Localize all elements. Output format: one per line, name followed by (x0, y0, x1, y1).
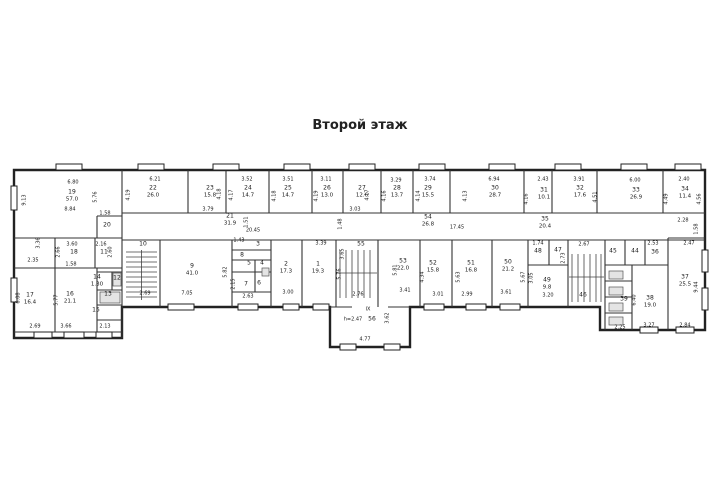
dim-label: 2.47 (683, 242, 694, 247)
room-label-3: 3 (256, 242, 260, 249)
dim-label: 3.41 (399, 289, 410, 294)
dim-label: 5.76 (94, 191, 99, 202)
room-label-37: 3725.5 (679, 275, 691, 288)
dim-label: 5.81 (394, 264, 399, 275)
dim-label: 8.84 (64, 208, 75, 213)
room-label-1: 119.3 (312, 262, 324, 275)
dim-label: IX (366, 308, 371, 313)
room-label-50: 5021.2 (502, 260, 514, 273)
room-label-7: 7 (244, 282, 248, 289)
dim-label: 2.40 (678, 178, 689, 183)
room-label-5: 5 (247, 261, 251, 268)
dim-label: 4.16 (383, 190, 388, 201)
dim-label: 3.74 (424, 178, 435, 183)
dim-label: 2.67 (578, 243, 589, 248)
dim-label: 5.76 (338, 268, 343, 279)
room-label-14: 141.30 (91, 275, 103, 288)
dim-label: 6.94 (488, 178, 499, 183)
dim-label: 1.43 (233, 239, 244, 244)
dim-label: 2.15 (232, 278, 237, 289)
dim-label: 3.05 (530, 272, 535, 283)
room-label-48: 48 (534, 249, 542, 256)
room-label-31: 3110.1 (538, 188, 550, 201)
dim-label: 2.66 (57, 246, 62, 257)
dim-label: 4.16 (525, 193, 530, 204)
dim-label: 6.40 (633, 294, 638, 305)
dim-label: 3.60 (66, 243, 77, 248)
dim-label: 5.67 (522, 271, 527, 282)
room-label-34: 3411.4 (679, 187, 691, 200)
dim-label: 5.77 (55, 294, 60, 305)
dim-label: 2.69 (139, 292, 150, 297)
dim-label: 2.76 (352, 293, 363, 298)
room-label-35: 3520.4 (539, 217, 551, 230)
dim-label: 4.56 (698, 193, 703, 204)
room-label-20: 20 (103, 223, 111, 230)
dim-label: 2.53 (647, 242, 658, 247)
dim-label: 4.17 (366, 189, 371, 200)
dim-label: 6.08 (17, 292, 22, 303)
room-label-26: 2613.0 (321, 186, 333, 199)
floor-plan-page: Второй этаж (0, 0, 720, 480)
dim-label: 4.14 (417, 190, 422, 201)
room-label-53: 5322.0 (397, 259, 409, 272)
dim-label: 4.17 (230, 189, 235, 200)
dim-label: 1.51 (245, 216, 250, 227)
room-label-2: 217.3 (280, 262, 292, 275)
dim-label: 4.18 (218, 188, 223, 199)
dim-label: 4.49 (665, 193, 670, 204)
room-label-46: 46 (579, 293, 587, 300)
dim-label: 3.00 (282, 291, 293, 296)
dim-label: 1.58 (65, 263, 76, 268)
room-label-6: 6 (257, 281, 261, 288)
dim-label: 3.65 (341, 248, 346, 259)
dim-label: 4.18 (273, 190, 278, 201)
dim-label: 6.80 (67, 181, 78, 186)
dim-label: 3.51 (282, 178, 293, 183)
room-label-51: 5116.8 (465, 261, 477, 274)
dim-label: 4.13 (464, 190, 469, 201)
room-label-13: 13 (104, 292, 112, 299)
dim-label: 3.20 (542, 294, 553, 299)
dim-label: 2.60 (109, 246, 114, 257)
room-label-22: 2226.0 (147, 186, 159, 199)
dim-label: 4.77 (359, 338, 370, 343)
room-label-21: 2131.9 (224, 214, 236, 227)
floor-plan: 1957.0202226.02315.82414.72514.72613.027… (0, 0, 720, 480)
dim-label: 2.13 (99, 325, 110, 330)
room-label-49: 499.8 (543, 278, 552, 291)
dim-label: 9.13 (23, 194, 28, 205)
dim-label: 7.05 (181, 292, 192, 297)
room-label-44: 44 (631, 249, 639, 256)
room-label-25: 2514.7 (282, 186, 294, 199)
dim-label: 3.61 (500, 291, 511, 296)
dim-label: 3.66 (60, 325, 71, 330)
dim-label: 20.45 (246, 229, 260, 234)
dim-label: h=2.47 (344, 318, 363, 323)
room-label-36: 36 (651, 250, 659, 257)
room-label-45: 45 (609, 249, 617, 256)
room-label-16: 1621.1 (64, 292, 76, 305)
dim-label: 3.27 (643, 324, 654, 329)
dim-label: 2.63 (242, 295, 253, 300)
dim-label: 6.21 (149, 178, 160, 183)
dim-label: 3.01 (432, 293, 443, 298)
dim-label: 1.74 (532, 242, 543, 247)
dim-label: 2.35 (27, 259, 38, 264)
dim-label: 2.43 (537, 178, 548, 183)
dim-label: 17.45 (450, 226, 464, 231)
room-label-33: 3326.9 (630, 188, 642, 201)
dim-label: 4.34 (421, 271, 426, 282)
dim-label: 1.58 (695, 223, 700, 234)
room-label-23: 2315.8 (204, 186, 216, 199)
dim-label: 2.73 (562, 252, 567, 263)
room-label-54: 5426.8 (422, 215, 434, 228)
room-label-9: 941.0 (186, 264, 198, 277)
dim-label: 2.28 (677, 219, 688, 224)
room-label-8: 8 (240, 253, 244, 260)
dim-label: 2.99 (461, 293, 472, 298)
room-label-52: 5215.8 (427, 261, 439, 274)
dim-label: 5.82 (224, 266, 229, 277)
room-label-39: 39 (620, 297, 628, 304)
room-label-10: 10 (139, 242, 147, 249)
room-label-29: 2915.5 (422, 186, 434, 199)
room-label-15: 15 (92, 308, 100, 315)
dim-label: 1.58 (99, 212, 110, 217)
room-label-18: 18 (70, 250, 78, 257)
dim-label: 2.84 (679, 324, 690, 329)
dim-label: 9.44 (695, 281, 700, 292)
room-label-17: 1716.4 (24, 293, 36, 306)
dim-label: 2.16 (95, 243, 106, 248)
dim-label: 3.91 (573, 178, 584, 183)
room-label-32: 3217.6 (574, 186, 586, 199)
room-label-28: 2813.7 (391, 186, 403, 199)
dim-label: 4.19 (127, 189, 132, 200)
room-label-30: 3028.7 (489, 186, 501, 199)
dim-label: 3.39 (315, 242, 326, 247)
dim-label: 4.51 (594, 191, 599, 202)
dim-label: 3.62 (386, 312, 391, 323)
dim-label: 3.03 (349, 208, 360, 213)
dim-label: 3.29 (390, 179, 401, 184)
dim-label: 4.19 (315, 190, 320, 201)
room-label-24: 2414.7 (242, 186, 254, 199)
room-label-55: 55 (357, 242, 365, 249)
dim-label: 2.25 (614, 326, 625, 331)
dim-label: 2.69 (29, 325, 40, 330)
room-label-19: 1957.0 (66, 190, 78, 203)
dim-label: 1.48 (339, 218, 344, 229)
dim-label: 5.63 (457, 271, 462, 282)
room-label-12: 12 (113, 276, 121, 283)
dim-label: 3.52 (241, 178, 252, 183)
room-label-56: 56 (368, 317, 376, 324)
dim-label: 3.11 (320, 178, 331, 183)
room-label-4: 4 (260, 261, 264, 268)
dim-label: 6.00 (629, 179, 640, 184)
room-label-38: 3819.0 (644, 296, 656, 309)
dim-label: 3.79 (202, 208, 213, 213)
dim-label: 3.36 (37, 237, 42, 248)
